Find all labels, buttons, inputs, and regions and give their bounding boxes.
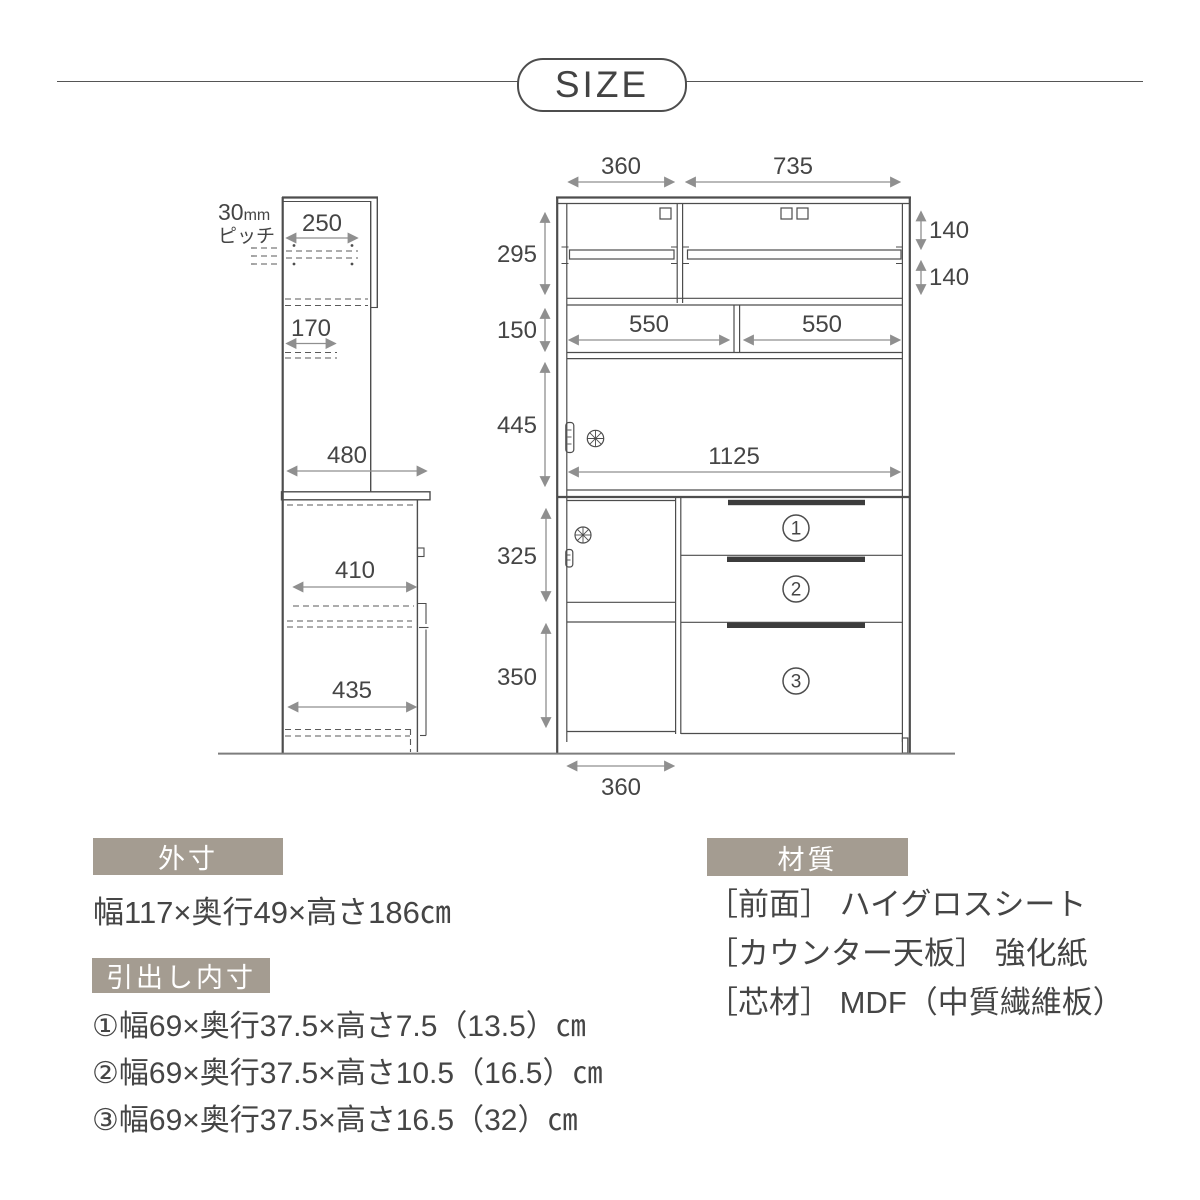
size-title-pill: SIZE [517, 58, 687, 112]
material-item-front: ［前面］ ハイグロスシート [707, 880, 1124, 929]
furniture-dimension-drawing: 1 2 3 [0, 0, 1200, 820]
outer-size-text: 幅117×奥行49×高さ186㎝ [93, 887, 451, 932]
drawer-inner-size-list: ①幅69×奥行37.5×高さ7.5（13.5）㎝ ②幅69×奥行37.5×高さ1… [92, 1003, 602, 1144]
slide-door-stopper-icon [660, 208, 671, 219]
dim-label-140-bottom: 140 [929, 264, 969, 291]
drawer-3-number: 3 [791, 672, 802, 693]
slide-door-stopper-icon [797, 208, 808, 219]
caster-wheel-icon [587, 430, 603, 446]
size-diagram-page: SIZE [0, 0, 1200, 1200]
dimension-arrows [287, 182, 921, 766]
drawer-size-item-2: ②幅69×奥行37.5×高さ10.5（16.5）㎝ [92, 1050, 602, 1097]
dim-label-pitch: ピッチ [218, 226, 275, 247]
drawer-number-badges: 1 2 3 [783, 515, 809, 694]
caster-wheel-icon [575, 527, 591, 543]
dim-label-150: 150 [497, 317, 537, 344]
dim-label-360-top: 360 [601, 153, 641, 180]
material-item-core: ［芯材］ MDF（中質繊維板） [707, 978, 1124, 1027]
dim-label-550-right: 550 [802, 311, 842, 338]
material-item-counter: ［カウンター天板］ 強化紙 [707, 929, 1124, 978]
drawer-size-item-1: ①幅69×奥行37.5×高さ7.5（13.5）㎝ [92, 1003, 602, 1050]
upper-shelf-left [570, 250, 675, 259]
dim-label-30mm-pitch: 30mm [218, 199, 270, 225]
dim-label-360-bottom: 360 [601, 774, 641, 801]
section-header-material: 材質 [707, 838, 908, 876]
dim-label-435: 435 [332, 677, 372, 704]
dim-label-350: 350 [497, 664, 537, 691]
dim-label-325: 325 [497, 543, 537, 570]
dim-label-480: 480 [327, 442, 367, 469]
drawer-2-number: 2 [791, 580, 802, 601]
section-header-drawer-inner-size: 引出し内寸 [92, 958, 270, 993]
dim-label-1125: 1125 [708, 443, 760, 470]
drawer-size-item-3: ③幅69×奥行37.5×高さ16.5（32）㎝ [92, 1097, 602, 1144]
dim-label-735: 735 [773, 153, 813, 180]
front-view-outline [556, 197, 911, 753]
dim-label-295: 295 [497, 241, 537, 268]
section-header-outer-size: 外寸 [93, 838, 283, 875]
side-view-outline [282, 197, 431, 753]
slide-door-stopper-icon [781, 208, 792, 219]
drawer-1-number: 1 [791, 519, 802, 540]
dim-label-140-top: 140 [929, 217, 969, 244]
dim-label-410: 410 [335, 557, 375, 584]
dim-label-250: 250 [302, 210, 342, 237]
dim-label-170: 170 [291, 315, 331, 342]
shelf-pin-dots [293, 244, 354, 265]
dim-label-550-left: 550 [629, 311, 669, 338]
material-list: ［前面］ ハイグロスシート ［カウンター天板］ 強化紙 ［芯材］ MDF（中質繊… [707, 880, 1124, 1027]
upper-shelf-right [688, 250, 902, 259]
dim-label-445: 445 [497, 412, 537, 439]
page-title: SIZE [555, 64, 649, 106]
